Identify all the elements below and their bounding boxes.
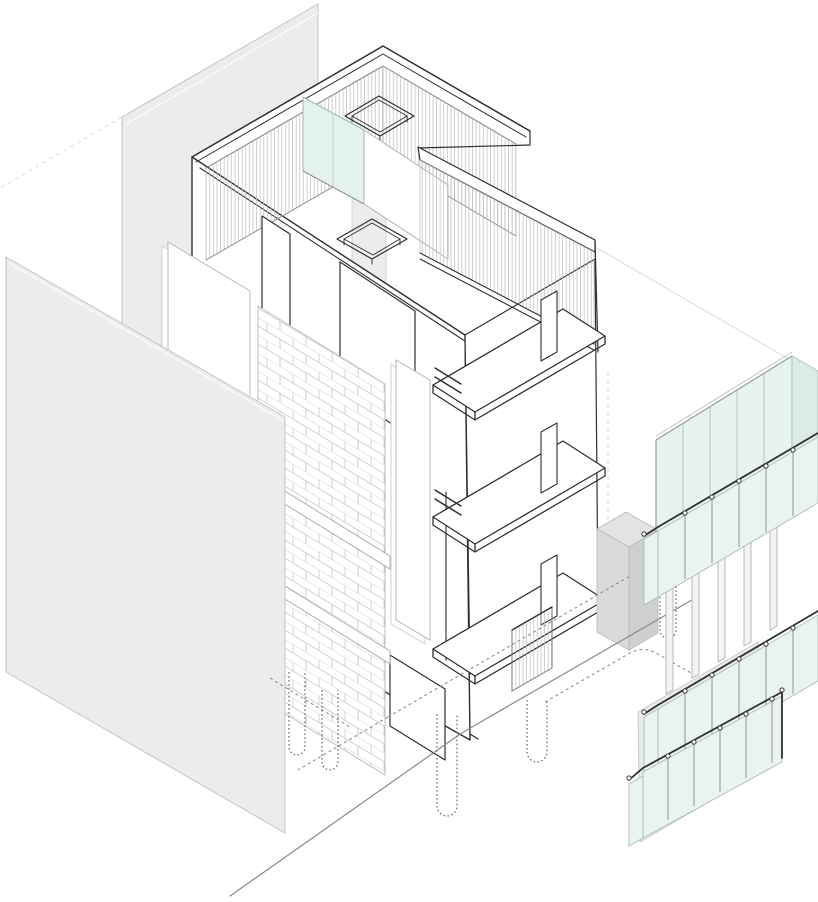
foundation-pile bbox=[527, 700, 547, 762]
ghost-guide-line bbox=[0, 117, 122, 188]
axonometric-drawing-canvas bbox=[0, 0, 818, 902]
wall-fin bbox=[541, 291, 557, 361]
service-box-left bbox=[597, 529, 629, 650]
wall-fin bbox=[541, 423, 557, 493]
building-axonometric-svg bbox=[0, 0, 818, 902]
balustrade-glass-return bbox=[644, 531, 658, 605]
balustrade-glass-return bbox=[629, 776, 643, 846]
corner-foot-tick bbox=[470, 734, 478, 739]
wall-panel bbox=[396, 360, 430, 640]
